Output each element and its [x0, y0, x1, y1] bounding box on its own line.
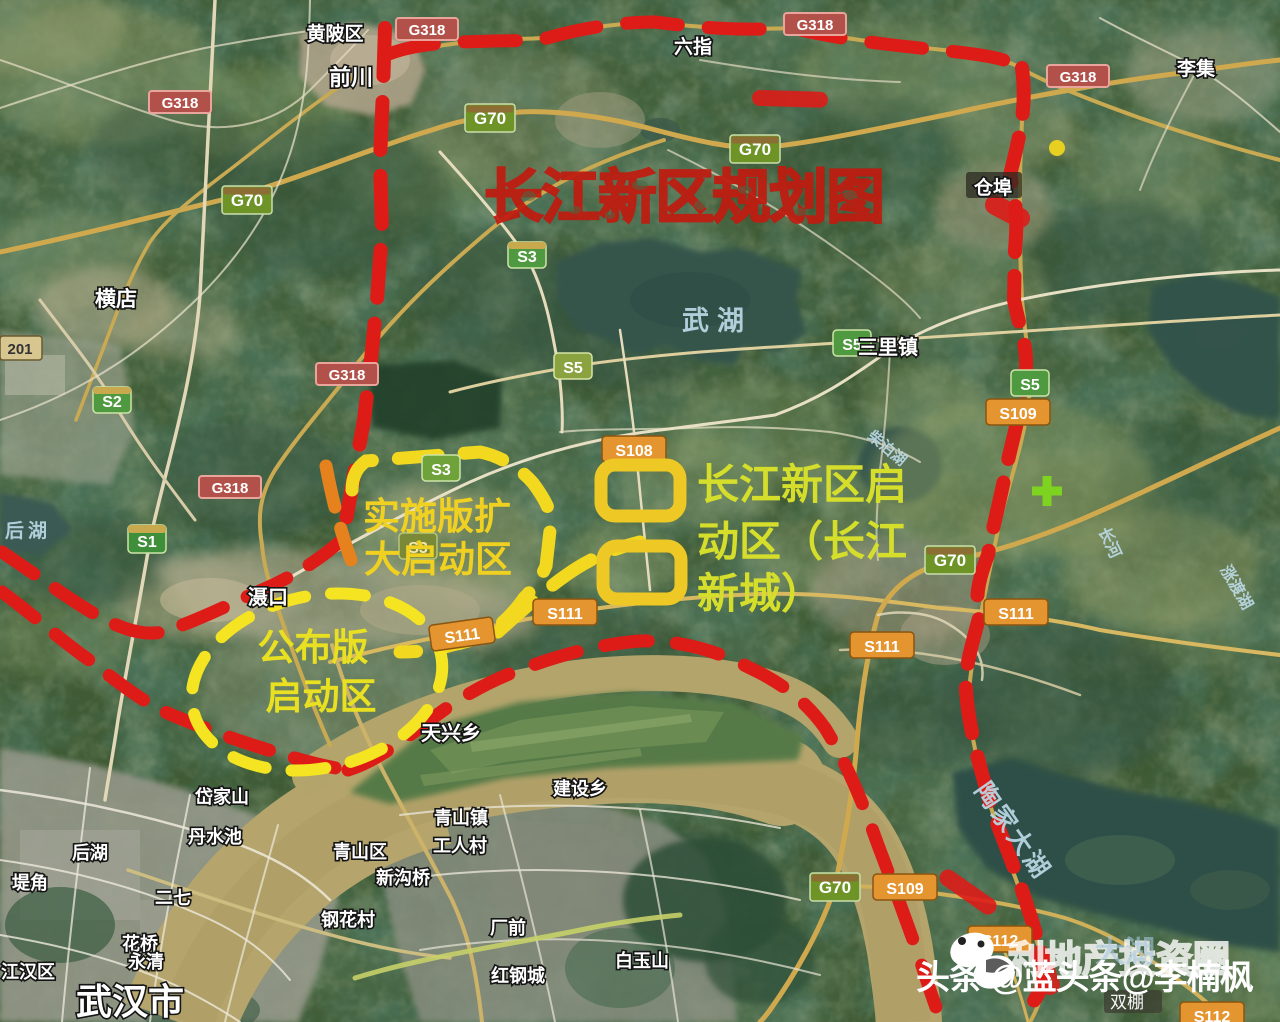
svg-text:堤角: 堤角 — [12, 872, 48, 893]
svg-text:201: 201 — [7, 341, 32, 358]
svg-text:新沟桥: 新沟桥 — [376, 867, 431, 888]
svg-text:S5: S5 — [563, 360, 583, 377]
svg-text:公布版: 公布版 — [258, 627, 369, 668]
svg-text:S109: S109 — [999, 406, 1036, 423]
svg-text:S3: S3 — [431, 462, 451, 479]
svg-text:头条 @蓝头条@李楠枫: 头条 @蓝头条@李楠枫 — [916, 959, 1254, 997]
svg-text:二七: 二七 — [155, 888, 191, 908]
svg-text:S5: S5 — [1020, 377, 1040, 394]
svg-text:前川: 前川 — [329, 65, 373, 90]
svg-text:李集: 李集 — [1176, 57, 1216, 80]
svg-text:江汉区: 江汉区 — [1, 962, 55, 982]
svg-text:S112: S112 — [1194, 1009, 1231, 1022]
svg-text:S109: S109 — [886, 881, 923, 898]
svg-text:白玉山: 白玉山 — [615, 950, 669, 971]
svg-text:S111: S111 — [998, 606, 1034, 623]
svg-text:S2: S2 — [102, 394, 122, 411]
svg-text:G318: G318 — [797, 17, 834, 34]
svg-text:实施版扩: 实施版扩 — [363, 496, 511, 537]
svg-text:武湖: 武湖 — [682, 306, 752, 336]
svg-text:G70: G70 — [934, 551, 966, 570]
svg-text:永清: 永清 — [127, 951, 164, 972]
svg-text:动区（长江: 动区（长江 — [697, 518, 907, 565]
svg-text:仓埠: 仓埠 — [973, 176, 1012, 199]
svg-text:G318: G318 — [409, 22, 446, 39]
svg-text:G318: G318 — [1060, 69, 1097, 86]
svg-text:S3: S3 — [517, 249, 537, 266]
svg-text:滠口: 滠口 — [248, 585, 288, 609]
svg-text:钢花村: 钢花村 — [321, 909, 375, 930]
svg-text:青山镇: 青山镇 — [434, 807, 488, 828]
svg-text:G70: G70 — [819, 878, 851, 897]
svg-text:丹水池: 丹水池 — [188, 826, 242, 847]
svg-text:S111: S111 — [547, 606, 583, 623]
svg-text:G318: G318 — [162, 95, 199, 112]
svg-text:大启动区: 大启动区 — [364, 539, 512, 580]
svg-text:G70: G70 — [474, 109, 506, 128]
svg-text:花桥: 花桥 — [122, 933, 159, 954]
svg-text:建设乡: 建设乡 — [553, 778, 607, 799]
svg-text:S111: S111 — [864, 639, 900, 656]
svg-text:红钢城: 红钢城 — [491, 965, 545, 986]
svg-text:后湖: 后湖 — [72, 843, 108, 863]
svg-text:青山区: 青山区 — [333, 842, 387, 862]
svg-text:横店: 横店 — [95, 287, 137, 311]
svg-text:G70: G70 — [231, 191, 263, 210]
svg-text:S1: S1 — [137, 534, 157, 551]
svg-text:六指: 六指 — [674, 35, 712, 58]
svg-text:天兴乡: 天兴乡 — [421, 722, 481, 745]
svg-text:启动区: 启动区 — [266, 676, 377, 717]
svg-text:黄陂区: 黄陂区 — [306, 22, 363, 45]
svg-text:三里镇: 三里镇 — [858, 335, 918, 359]
svg-text:武汉市: 武汉市 — [76, 981, 184, 1022]
svg-text:S108: S108 — [615, 443, 652, 460]
svg-text:G318: G318 — [212, 480, 249, 497]
svg-text:厂前: 厂前 — [490, 917, 526, 938]
svg-text:G318: G318 — [329, 367, 366, 384]
svg-text:新城）: 新城） — [697, 570, 823, 617]
svg-text:长江新区启: 长江新区启 — [697, 461, 907, 508]
svg-text:G70: G70 — [739, 140, 771, 159]
svg-text:工人村: 工人村 — [433, 835, 487, 856]
svg-text:岱家山: 岱家山 — [194, 786, 249, 807]
svg-text:后湖: 后湖 — [5, 520, 51, 542]
svg-text:长江新区规划图: 长江新区规划图 — [484, 165, 883, 230]
